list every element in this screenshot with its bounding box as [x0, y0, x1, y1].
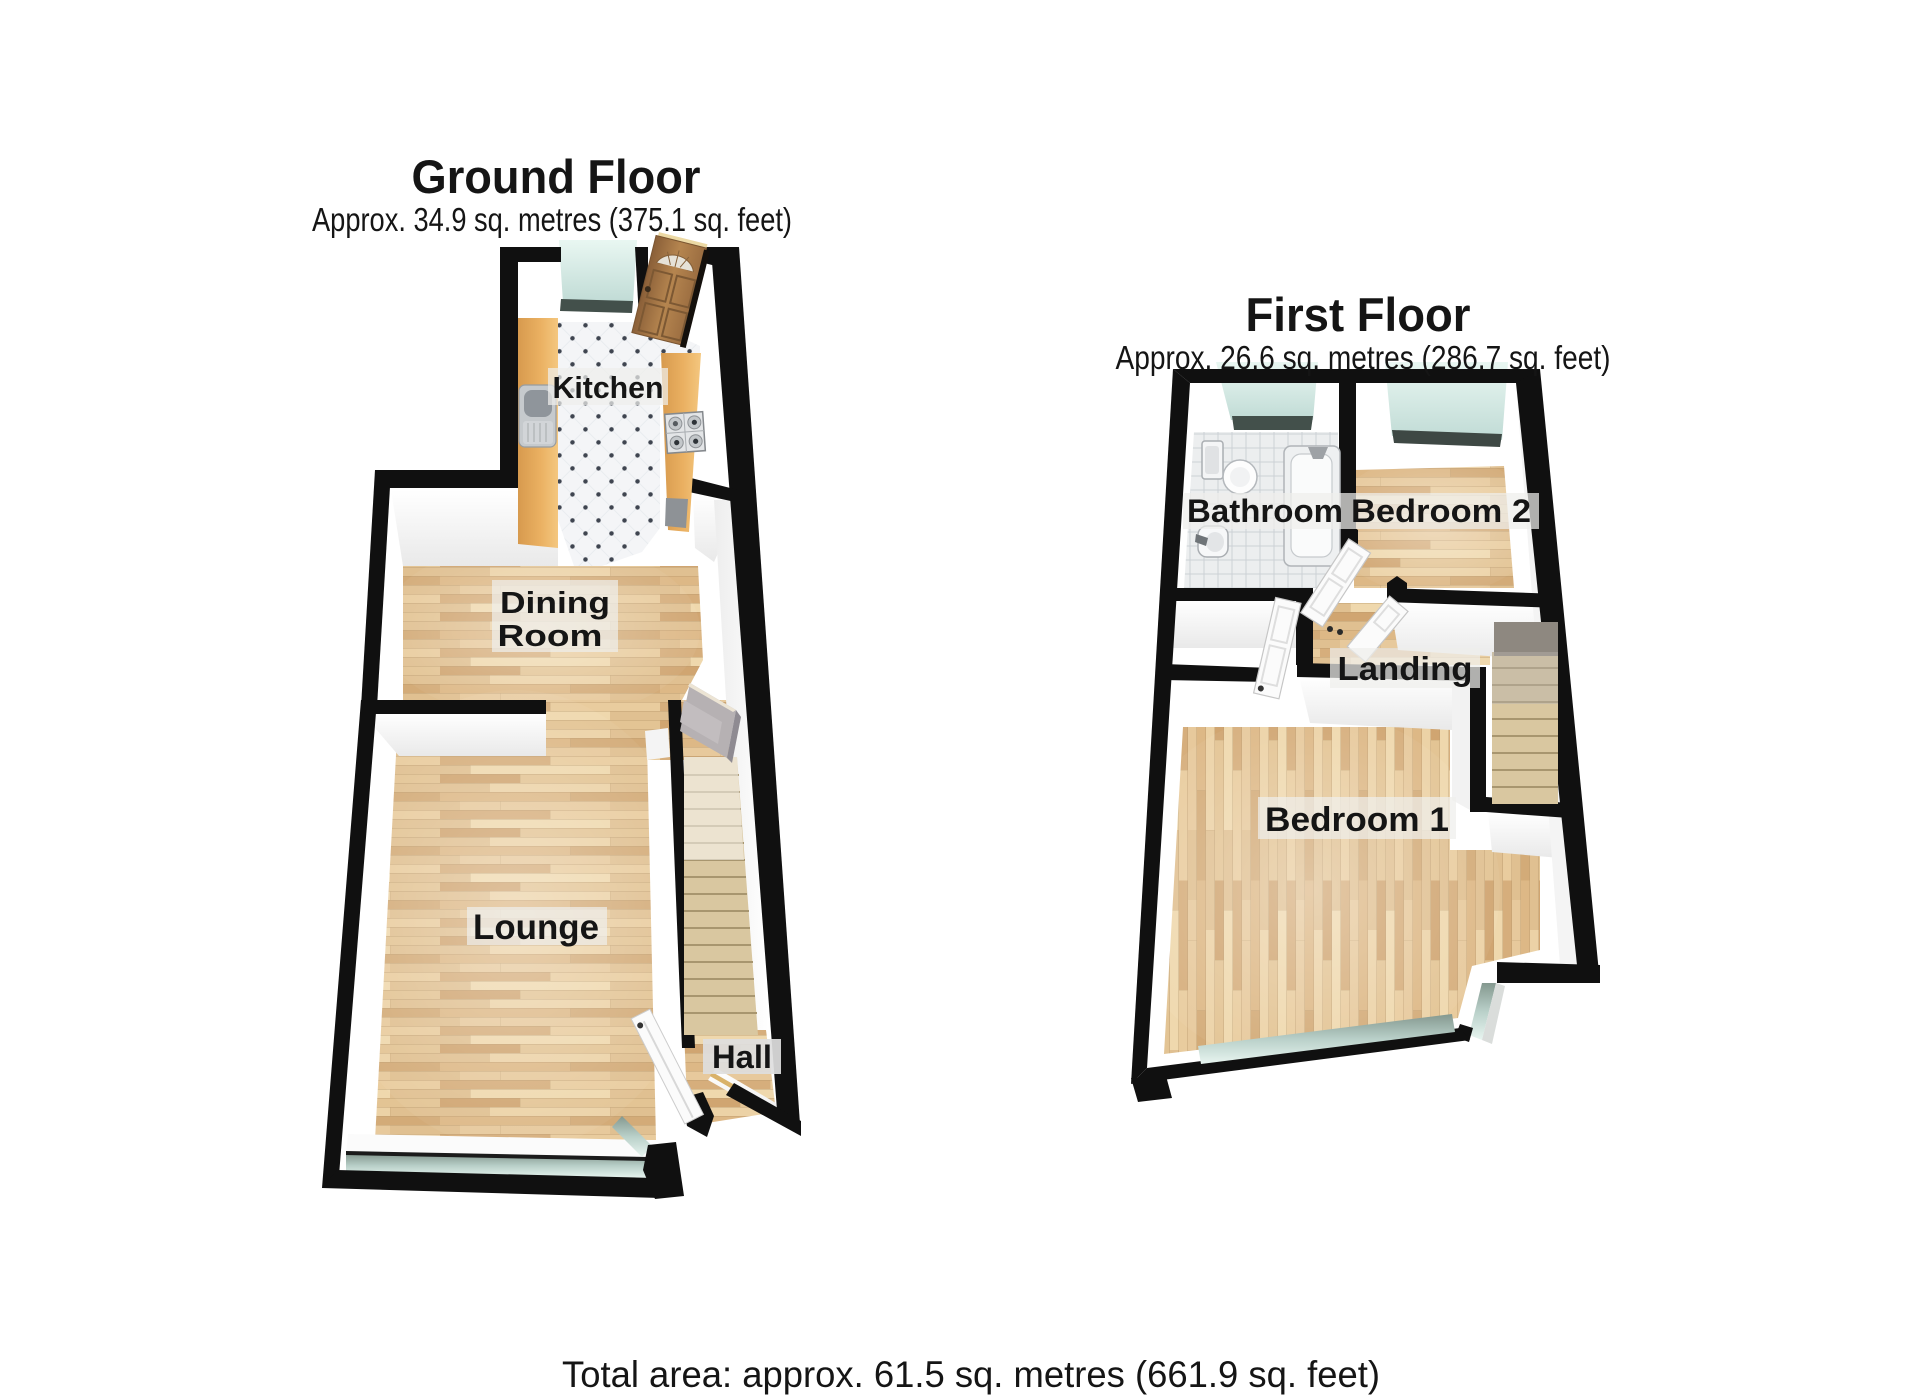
- svg-text:Bathroom: Bathroom: [1187, 493, 1343, 529]
- svg-text:First Floor: First Floor: [1246, 288, 1471, 341]
- svg-text:Ground Floor: Ground Floor: [412, 150, 701, 203]
- svg-text:Bedroom 1: Bedroom 1: [1265, 801, 1449, 839]
- svg-text:Kitchen: Kitchen: [553, 370, 664, 405]
- svg-text:Hall: Hall: [712, 1039, 772, 1075]
- svg-text:Room: Room: [498, 618, 603, 653]
- svg-text:Lounge: Lounge: [473, 908, 599, 947]
- svg-text:Approx. 26.6 sq. metres (286.7: Approx. 26.6 sq. metres (286.7 sq. feet): [1116, 339, 1611, 376]
- svg-text:Total area: approx. 61.5 sq. m: Total area: approx. 61.5 sq. metres (661…: [562, 1354, 1380, 1395]
- svg-text:Approx. 34.9 sq. metres (375.1: Approx. 34.9 sq. metres (375.1 sq. feet): [312, 201, 792, 238]
- svg-text:Bedroom 2: Bedroom 2: [1351, 493, 1531, 529]
- svg-text:Dining: Dining: [500, 585, 610, 620]
- svg-text:Landing: Landing: [1338, 650, 1473, 687]
